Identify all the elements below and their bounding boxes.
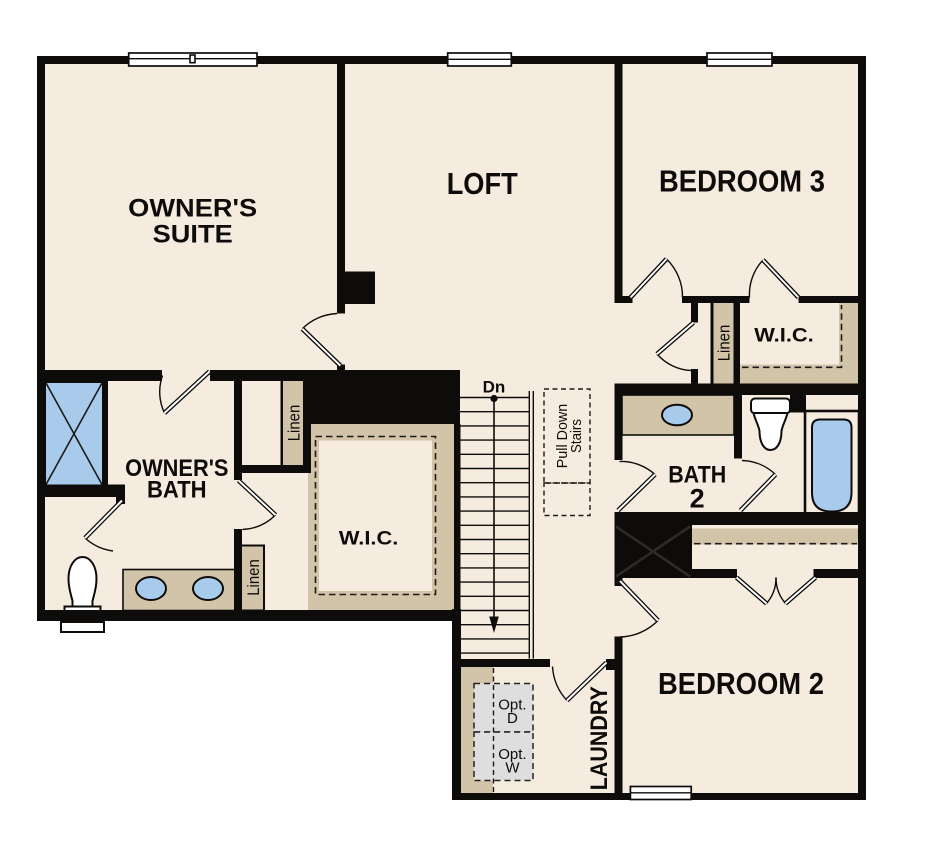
svg-text:W.I.C.: W.I.C. (339, 528, 399, 550)
svg-text:D: D (507, 710, 518, 727)
svg-text:Dn: Dn (483, 378, 506, 397)
svg-text:LAUNDRY: LAUNDRY (586, 686, 613, 790)
svg-text:Linen: Linen (244, 559, 263, 596)
svg-text:W: W (505, 759, 520, 776)
svg-text:Stairs: Stairs (569, 419, 585, 453)
svg-text:BEDROOM 2: BEDROOM 2 (658, 667, 824, 701)
svg-text:W.I.C.: W.I.C. (754, 325, 814, 347)
svg-text:Linen: Linen (715, 325, 734, 362)
svg-text:OWNER'S: OWNER'S (128, 194, 257, 222)
svg-text:Linen: Linen (285, 405, 304, 442)
svg-text:2: 2 (690, 484, 705, 514)
svg-text:BEDROOM 3: BEDROOM 3 (659, 165, 825, 199)
svg-text:LOFT: LOFT (447, 167, 518, 201)
svg-text:BATH: BATH (147, 477, 207, 504)
svg-text:SUITE: SUITE (153, 221, 233, 249)
